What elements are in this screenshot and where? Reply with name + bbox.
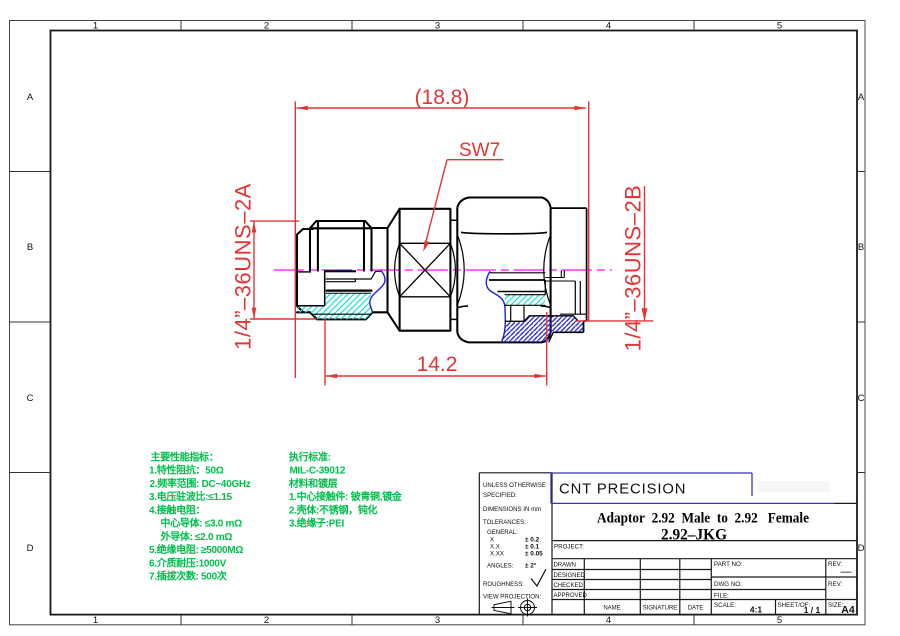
svg-text:14.2: 14.2 xyxy=(417,353,458,376)
svg-text:MIL-C-39012: MIL-C-39012 xyxy=(290,466,346,477)
svg-text:4: 4 xyxy=(606,615,611,626)
svg-text:± 2°: ± 2° xyxy=(525,562,537,570)
svg-text:材料和镀层: 材料和镀层 xyxy=(289,477,338,490)
svg-text:7.插拔次数: 500次: 7.插拔次数: 500次 xyxy=(149,570,227,583)
svg-text:1 / 1: 1 / 1 xyxy=(804,605,821,615)
svg-text:2.92–JKG: 2.92–JKG xyxy=(661,527,727,544)
svg-text:外导体: ≤2.0 mΩ: 外导体: ≤2.0 mΩ xyxy=(160,530,233,543)
svg-text:UNLESS OTHERWISE: UNLESS OTHERWISE xyxy=(483,482,546,489)
svg-text:6.介质耐压:1000V: 6.介质耐压:1000V xyxy=(149,556,227,569)
svg-text:2: 2 xyxy=(264,615,269,626)
svg-text:DATE: DATE xyxy=(688,606,704,612)
svg-text:PART NO:: PART NO: xyxy=(714,561,743,568)
svg-text:3: 3 xyxy=(435,615,440,626)
svg-text:1.中心接触件: 铍青铜,镀金: 1.中心接触件: 铍青铜,镀金 xyxy=(289,490,403,503)
svg-text:5: 5 xyxy=(777,615,782,626)
svg-text:1/4”–36UNS–2A: 1/4”–36UNS–2A xyxy=(231,183,256,350)
svg-text:DESIGNED: DESIGNED xyxy=(554,573,586,579)
svg-text:X: X xyxy=(490,537,494,544)
svg-text:C: C xyxy=(858,393,865,404)
svg-text:APPROVED: APPROVED xyxy=(554,593,588,599)
svg-text:4:1: 4:1 xyxy=(750,605,763,615)
svg-text:2.壳体:不锈钢，钝化: 2.壳体:不锈钢，钝化 xyxy=(289,503,378,516)
svg-text:TOLERANCES:: TOLERANCES: xyxy=(483,519,526,526)
svg-text:SPECIFIED:: SPECIFIED: xyxy=(483,492,517,499)
svg-text:1/4”–36UNS–2B: 1/4”–36UNS–2B xyxy=(621,185,646,352)
svg-text:主要性能指标：: 主要性能指标： xyxy=(151,450,219,463)
svg-text:GENERAL:: GENERAL: xyxy=(487,529,518,536)
svg-text:ROUGHNESS:: ROUGHNESS: xyxy=(483,581,524,588)
svg-text:A: A xyxy=(27,92,34,103)
svg-text:DRAWN: DRAWN xyxy=(554,563,576,569)
svg-text:CHECKED: CHECKED xyxy=(554,583,584,589)
svg-text:NAME: NAME xyxy=(603,606,620,612)
svg-text:执行标准:: 执行标准: xyxy=(289,450,331,463)
svg-text:2: 2 xyxy=(264,21,269,32)
svg-text:± 0.2: ± 0.2 xyxy=(525,537,540,544)
svg-text:± 0.1: ± 0.1 xyxy=(525,544,540,551)
svg-text:A: A xyxy=(858,92,865,103)
svg-text:B: B xyxy=(858,242,864,253)
svg-text:(18.8): (18.8) xyxy=(415,86,470,109)
svg-text:C: C xyxy=(27,393,34,404)
svg-text:中心导体: ≤3.0 mΩ: 中心导体: ≤3.0 mΩ xyxy=(161,517,243,530)
svg-text:A4: A4 xyxy=(841,604,855,616)
svg-text:3.绝缘子:PEI: 3.绝缘子:PEI xyxy=(289,517,345,530)
svg-text:Adaptor 2.92 Male to 2.92: Adaptor 2.92 Male to 2.92 Female xyxy=(597,511,809,527)
svg-text:DIMENSIONS IN mm: DIMENSIONS IN mm xyxy=(483,506,541,513)
svg-text:REV:: REV: xyxy=(828,581,842,588)
svg-text:5: 5 xyxy=(777,21,782,32)
svg-text:ANGLES:: ANGLES: xyxy=(487,563,514,570)
svg-text:4.接触电阻：: 4.接触电阻： xyxy=(149,503,205,516)
svg-text:PROJECT:: PROJECT: xyxy=(554,544,584,551)
svg-text:VIEW PROJECTION:: VIEW PROJECTION: xyxy=(483,594,542,601)
svg-text:SIGNATURE: SIGNATURE xyxy=(643,606,678,612)
svg-text:1: 1 xyxy=(93,615,98,626)
svg-text:2.频率范围: DC~40GHz: 2.频率范围: DC~40GHz xyxy=(150,477,251,490)
svg-text:4: 4 xyxy=(606,21,611,32)
svg-text:1: 1 xyxy=(93,21,98,32)
svg-text:1.特性阻抗：50Ω: 1.特性阻抗：50Ω xyxy=(149,464,224,477)
svg-text:3: 3 xyxy=(435,21,440,32)
svg-text:B: B xyxy=(27,242,33,253)
svg-text:SCALE:: SCALE: xyxy=(714,602,736,609)
svg-text:—: — xyxy=(841,566,852,578)
svg-text:FILE:: FILE: xyxy=(714,593,729,600)
svg-text:DWG NO:: DWG NO: xyxy=(714,581,742,588)
svg-text:X.XX: X.XX xyxy=(490,551,504,558)
svg-text:SW7: SW7 xyxy=(459,140,500,161)
svg-text:± 0.05: ± 0.05 xyxy=(525,551,543,558)
svg-text:D: D xyxy=(27,543,34,554)
svg-text:5.绝缘电阻: ≥5000MΩ: 5.绝缘电阻: ≥5000MΩ xyxy=(149,543,243,556)
svg-text:D: D xyxy=(858,543,865,554)
svg-text:3.电压驻波比:≤1.15: 3.电压驻波比:≤1.15 xyxy=(149,490,232,503)
svg-text:CNT PRECISION: CNT PRECISION xyxy=(559,482,686,498)
svg-text:X.X: X.X xyxy=(490,544,500,551)
